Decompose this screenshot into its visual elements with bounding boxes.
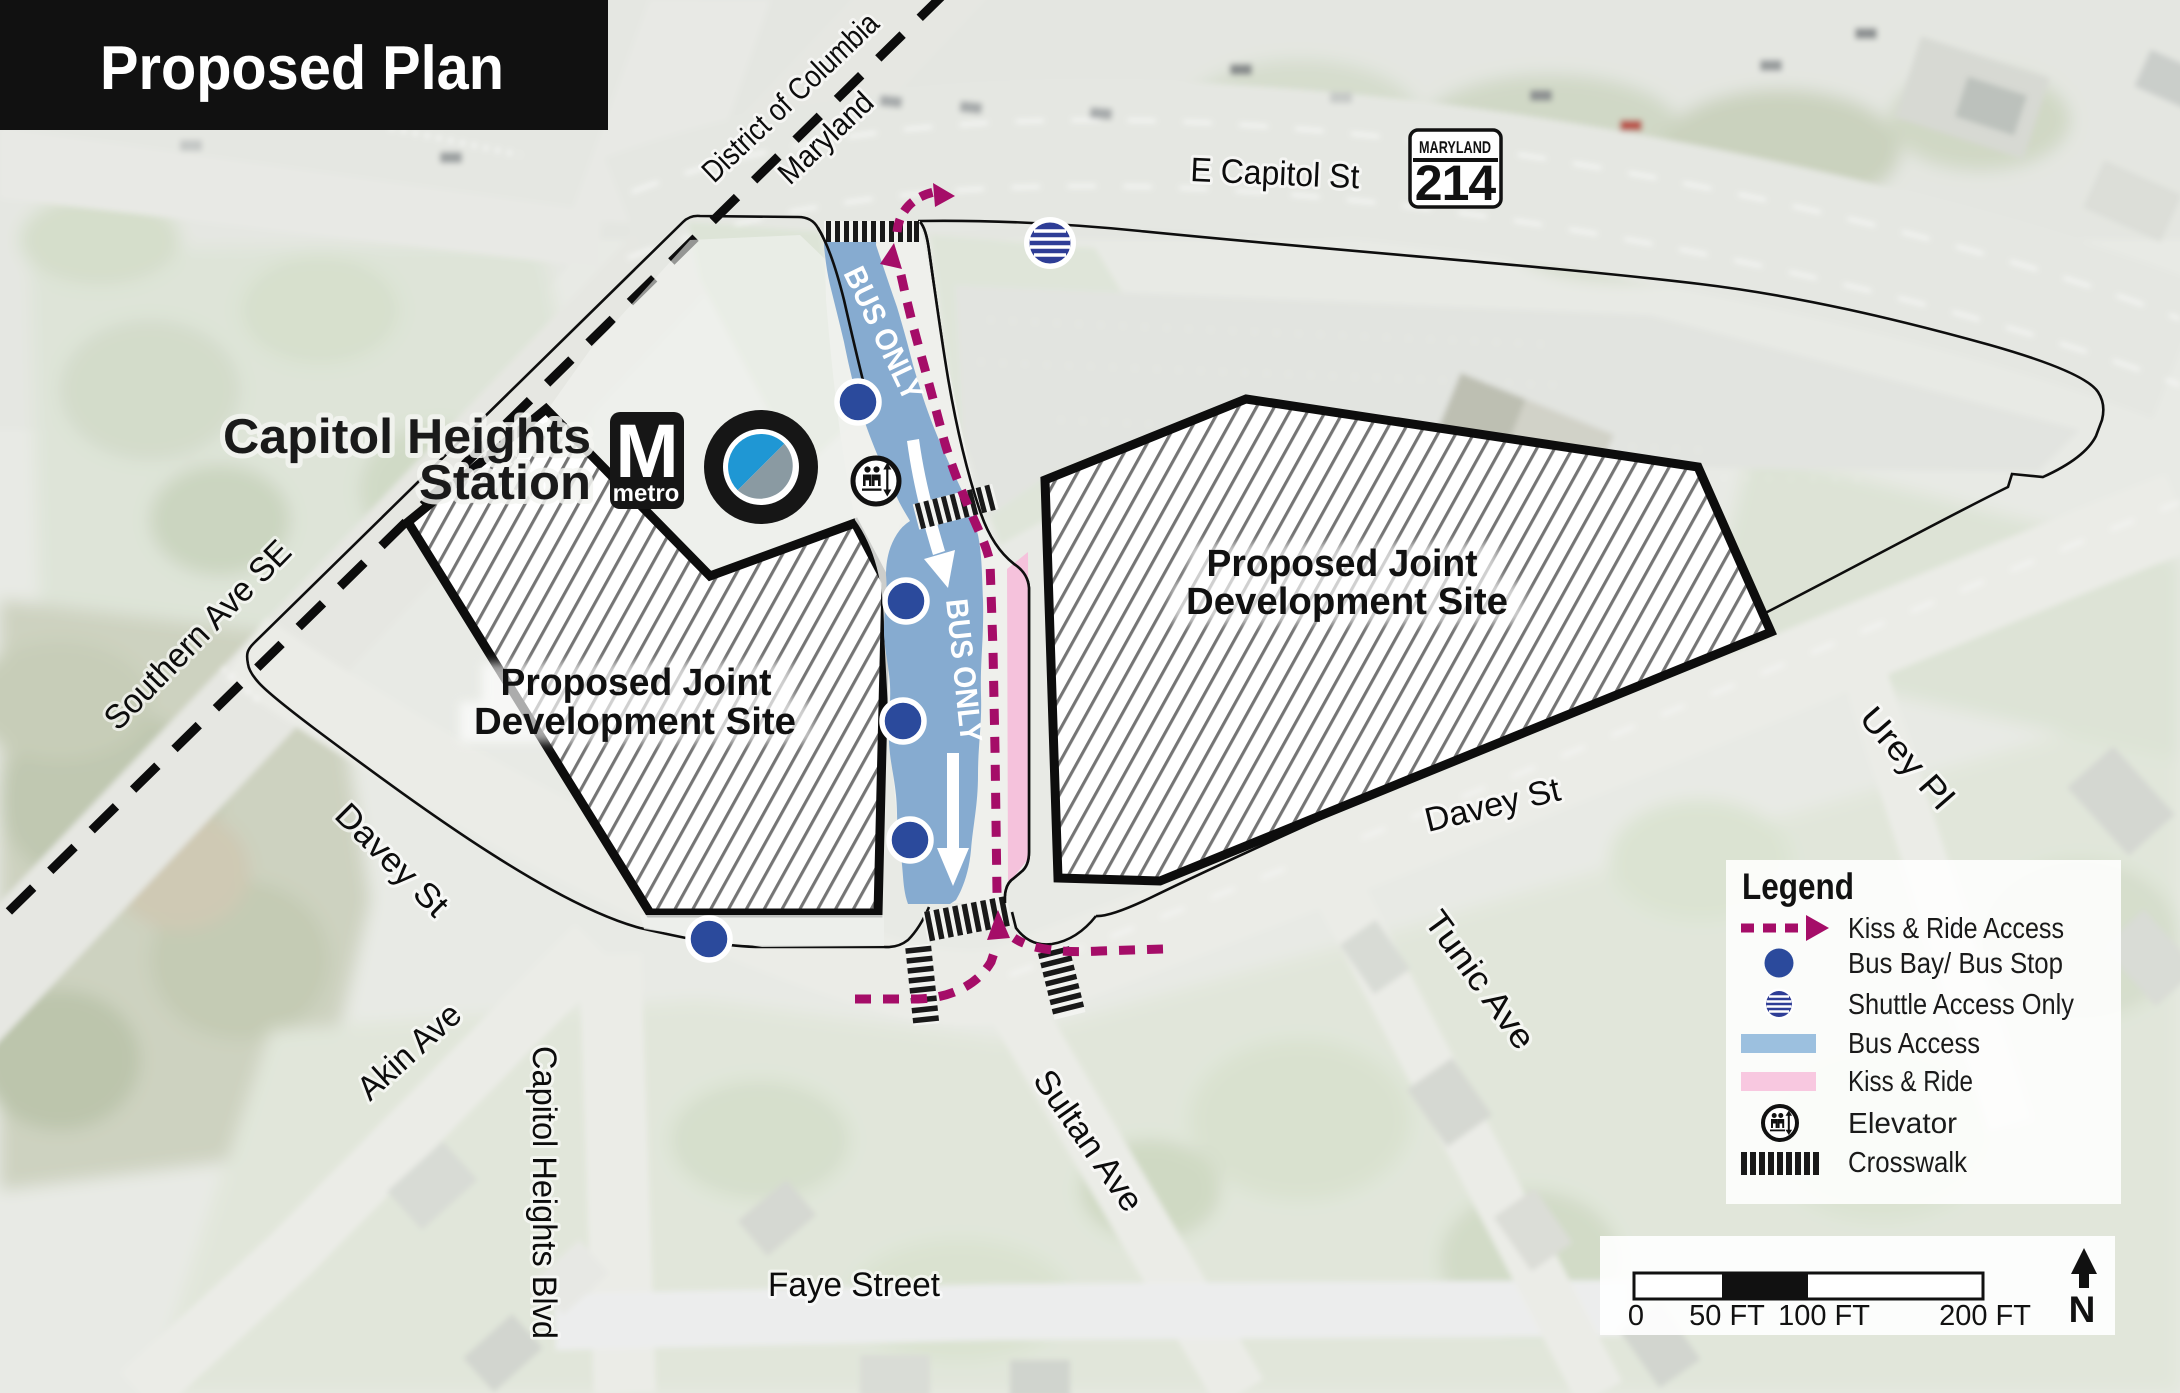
svg-text:Shuttle Access Only: Shuttle Access Only <box>1848 989 2074 1021</box>
svg-text:214: 214 <box>1415 155 1497 211</box>
svg-text:Faye Street: Faye Street <box>768 1266 941 1304</box>
svg-text:Crosswalk: Crosswalk <box>1848 1147 1967 1179</box>
svg-text:Development Site: Development Site <box>1186 581 1508 623</box>
svg-text:metro: metro <box>613 480 680 507</box>
svg-text:Bus Access: Bus Access <box>1848 1028 1980 1060</box>
svg-text:Kiss & Ride: Kiss & Ride <box>1848 1066 1973 1098</box>
svg-text:200 FT: 200 FT <box>1939 1300 2031 1332</box>
svg-text:100 FT: 100 FT <box>1778 1300 1870 1332</box>
svg-text:E Capitol St: E Capitol St <box>1190 151 1361 196</box>
svg-text:Proposed Joint: Proposed Joint <box>1207 543 1478 585</box>
svg-text:Station: Station <box>419 456 591 510</box>
svg-text:0: 0 <box>1628 1300 1644 1332</box>
svg-text:Kiss & Ride Access: Kiss & Ride Access <box>1848 913 2064 945</box>
svg-text:50 FT: 50 FT <box>1689 1300 1765 1332</box>
svg-text:Legend: Legend <box>1742 866 1854 907</box>
svg-text:Bus Bay/ Bus Stop: Bus Bay/ Bus Stop <box>1848 948 2063 980</box>
svg-text:Capitol Heights Blvd: Capitol Heights Blvd <box>525 1046 563 1339</box>
svg-text:Proposed Plan: Proposed Plan <box>100 34 504 103</box>
svg-text:Development Site: Development Site <box>474 701 796 743</box>
svg-text:Proposed Joint: Proposed Joint <box>501 662 772 704</box>
svg-text:Elevator: Elevator <box>1848 1108 1957 1140</box>
svg-text:N: N <box>2069 1289 2096 1330</box>
